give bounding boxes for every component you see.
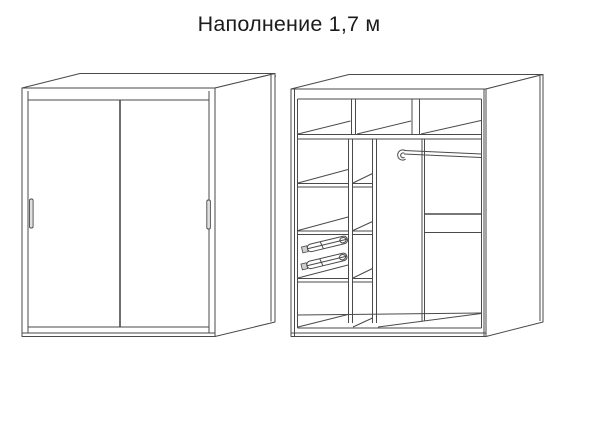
wardrobe-diagram [0,0,600,422]
door-handle-left [30,199,34,228]
interior-wardrobe-view [291,75,544,337]
wardrobe-side-panel [215,74,275,337]
wardrobe-front-frame [22,88,215,337]
closed-wardrobe-view [22,74,276,337]
door-handle-right [207,200,211,229]
carcass-side-panel [486,75,543,337]
wardrobe-diagram-page: Наполнение 1,7 м [0,0,600,422]
